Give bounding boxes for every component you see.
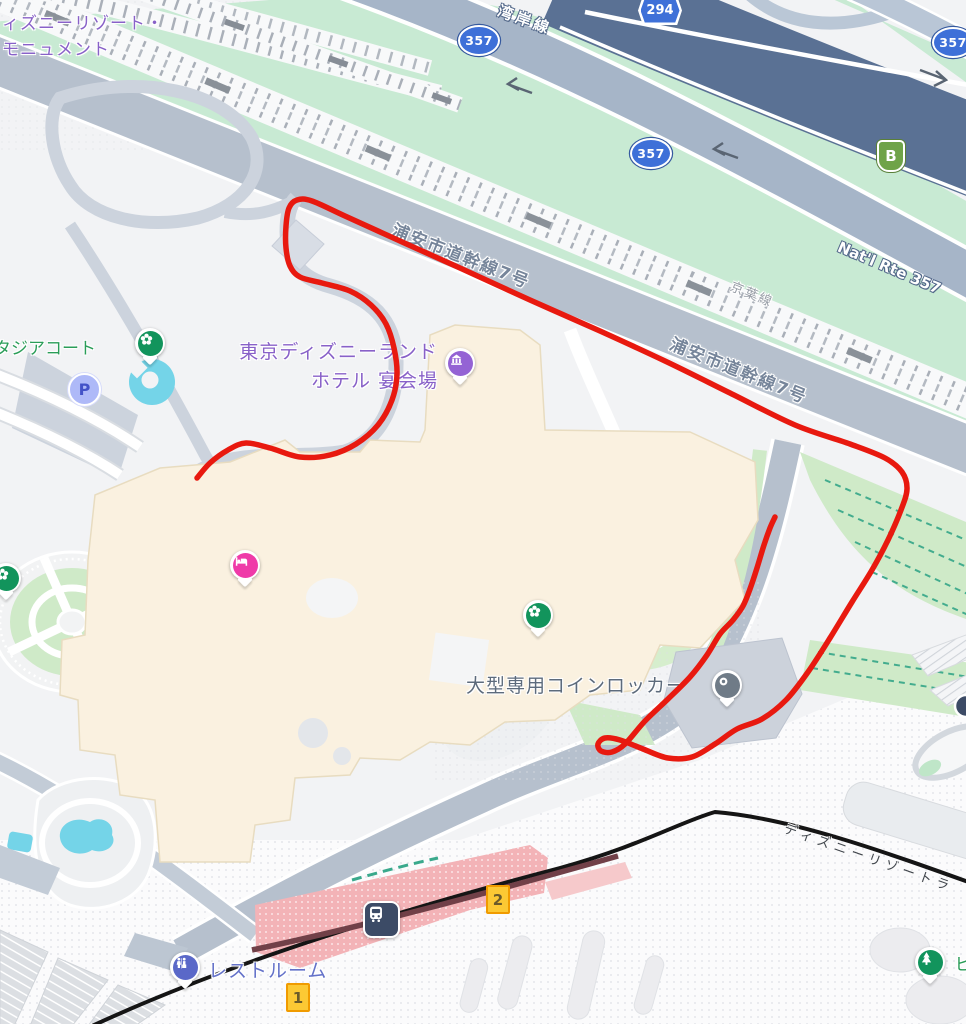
tree-icon (918, 950, 943, 975)
partial-transit-icon[interactable] (955, 695, 966, 717)
station-exit-1-badge[interactable]: 1 (286, 983, 310, 1012)
flower-icon (0, 566, 19, 591)
park-tree-pin[interactable] (915, 947, 945, 977)
bed-icon (233, 553, 258, 578)
station-exit-2-badge[interactable]: 2 (486, 885, 510, 914)
coin-locker-label[interactable]: 大型専用コインロッカー (466, 671, 686, 698)
hotel-banquet-label[interactable]: 東京ディズニーランド ホテル 宴会場 (222, 338, 438, 397)
venue-building-icon (448, 351, 473, 376)
monument-label[interactable]: ィズニーリゾート・ モニュメント (2, 12, 164, 63)
stadia-court-label[interactable]: タジアコート (0, 334, 96, 359)
partial-label-right-edge[interactable]: ビ (955, 950, 966, 975)
place-dot-icon (715, 673, 740, 698)
station-transit-icon[interactable] (363, 901, 400, 938)
flower-icon (138, 331, 163, 356)
restroom-icon (173, 955, 198, 980)
restroom-pin[interactable] (170, 952, 200, 982)
shuto-b-shield: B (877, 140, 905, 172)
train-icon (365, 903, 387, 925)
route-357-shield-a: 357 (458, 25, 500, 56)
base-map-art (0, 0, 966, 1024)
park-flower-pin-2[interactable] (523, 600, 553, 630)
map-canvas[interactable]: ィズニーリゾート・ モニュメント タジアコート 東京ディズニーランド ホテル 宴… (0, 0, 966, 1024)
route-357-shield-b: 357 (630, 138, 672, 169)
route-357-shield-c: 357 (932, 27, 966, 58)
coin-locker-pin[interactable] (712, 670, 742, 700)
restroom-label[interactable]: レストルーム (208, 956, 327, 983)
hotel-pin[interactable] (230, 550, 260, 580)
parking-icon[interactable]: P (68, 373, 101, 406)
park-flower-pin-1[interactable] (135, 328, 165, 358)
banquet-hall-pin[interactable] (445, 348, 475, 378)
route-294-shield: 294 (638, 0, 682, 25)
flower-icon (526, 603, 551, 628)
